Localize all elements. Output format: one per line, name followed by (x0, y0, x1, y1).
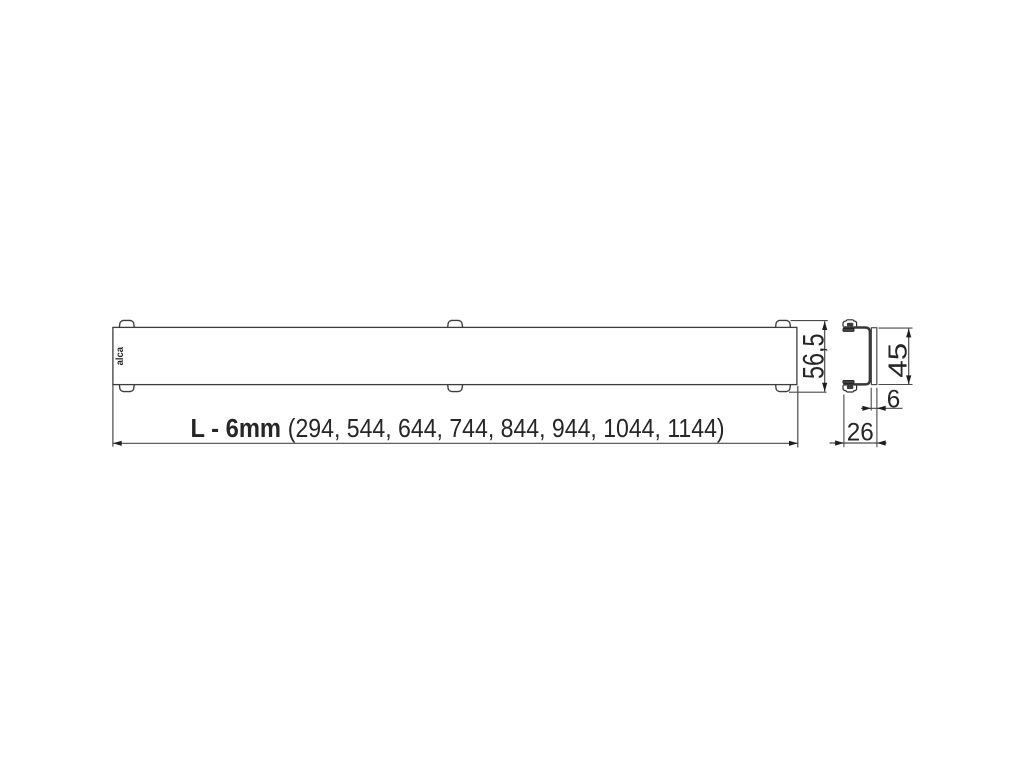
svg-text:L - 6mm: L - 6mm (191, 415, 282, 443)
svg-text:(294, 544, 644, 744, 844, 944,: (294, 544, 644, 744, 844, 944, 1044, 114… (288, 415, 725, 443)
svg-text:26: 26 (847, 419, 874, 447)
svg-text:alca: alca (115, 347, 126, 366)
svg-text:56,5: 56,5 (798, 333, 831, 379)
svg-text:6: 6 (887, 386, 901, 414)
svg-text:45: 45 (882, 343, 912, 378)
